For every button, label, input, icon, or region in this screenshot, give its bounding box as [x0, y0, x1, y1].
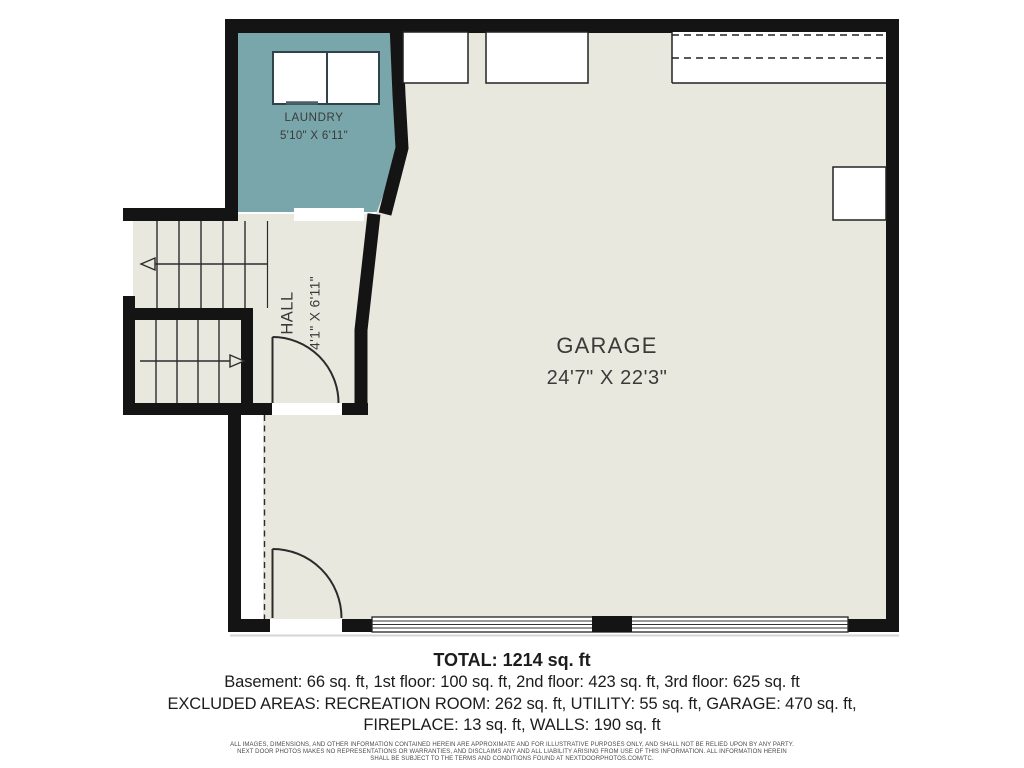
dryer — [327, 52, 379, 104]
area-summary: TOTAL: 1214 sq. ft Basement: 66 sq. ft, … — [0, 649, 1024, 763]
garage-doors — [372, 616, 848, 632]
wall-laundry-left — [225, 19, 238, 221]
laundry-hall-opening — [294, 208, 364, 221]
wall-garage-left-lower — [228, 403, 241, 632]
wall-stairs-left — [123, 296, 135, 415]
excluded-areas-line-2: FIREPLACE: 13 sq. ft, WALLS: 190 sq. ft — [0, 715, 1024, 737]
laundry-dimensions: 5'10" X 6'11" — [280, 130, 348, 142]
disclaimer-line-2: NEXT DOOR PHOTOS MAKES NO REPRESENTATION… — [0, 749, 1024, 756]
wall-stairs-middle — [123, 308, 253, 320]
wall-top — [225, 19, 899, 33]
floor-plan-page: LAUNDRY 5'10" X 6'11" HALL 4'1" X 6'11" … — [0, 0, 1024, 768]
washer — [273, 52, 327, 104]
excluded-areas-line-1: EXCLUDED AREAS: RECREATION ROOM: 262 sq.… — [0, 694, 1024, 716]
hall-dimensions: 4'1" X 6'11" — [307, 276, 323, 350]
disclaimer-line-1: ALL IMAGES, DIMENSIONS, AND OTHER INFORM… — [0, 742, 1024, 749]
garage-entry-door-opening — [270, 619, 342, 632]
garage-label: GARAGE — [556, 333, 657, 358]
laundry-appliances — [273, 52, 379, 104]
hall-door-opening — [272, 403, 342, 415]
garage-cabinet-2 — [486, 32, 588, 83]
laundry-label: LAUNDRY — [285, 112, 344, 124]
wall-right — [886, 19, 899, 632]
garage-right-fixture — [833, 167, 886, 220]
floor-breakdown: Basement: 66 sq. ft, 1st floor: 100 sq. … — [0, 672, 1024, 694]
garage-door-pier — [592, 616, 632, 632]
garage-overhead-shelf — [672, 32, 886, 83]
garage-left-recess — [241, 415, 265, 619]
disclaimer: ALL IMAGES, DIMENSIONS, AND OTHER INFORM… — [0, 742, 1024, 763]
garage-cabinet-1 — [403, 32, 468, 83]
garage-dimensions: 24'7" X 22'3" — [547, 367, 668, 389]
total-area: TOTAL: 1214 sq. ft — [0, 649, 1024, 672]
wall-stairs-top — [123, 208, 238, 221]
hall-label: HALL — [278, 291, 296, 334]
disclaimer-line-3: SHALL BE SUBJECT TO THE TERMS AND CONDIT… — [0, 756, 1024, 763]
